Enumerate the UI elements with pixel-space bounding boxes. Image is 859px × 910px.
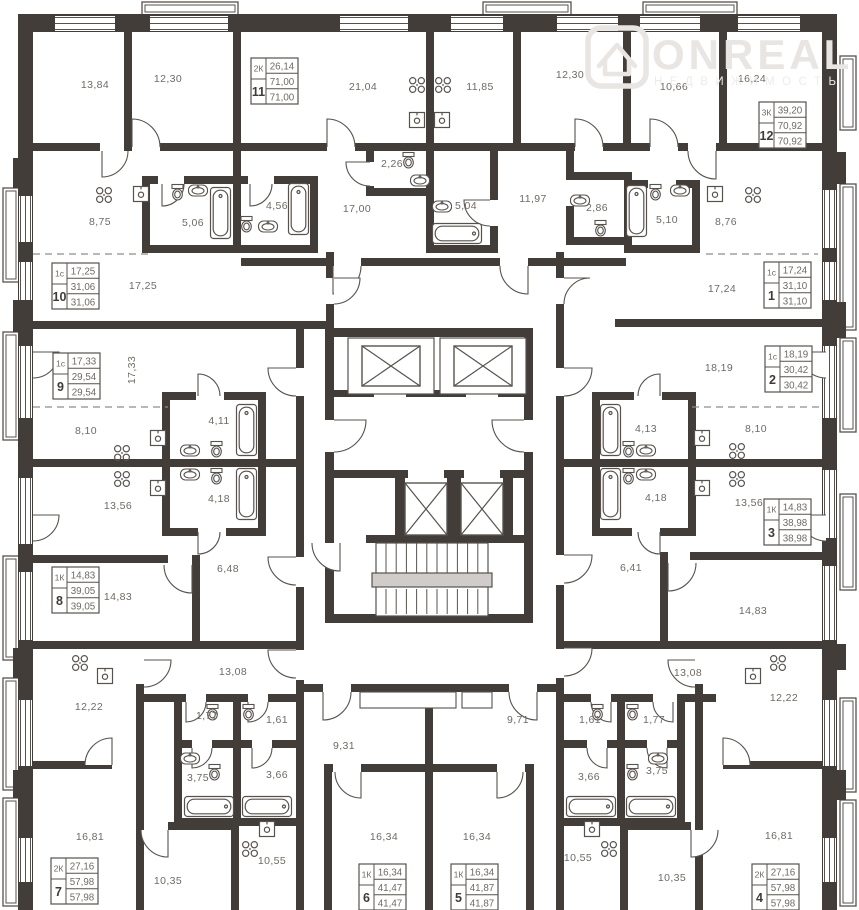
room-area-label: 16,34 xyxy=(370,831,398,843)
basin-icon xyxy=(671,185,690,196)
wall-segment xyxy=(556,678,564,910)
total-area-value-2: 57,98 xyxy=(70,892,95,903)
wall-segment xyxy=(528,258,626,266)
wall-segment xyxy=(426,14,434,253)
wall-segment xyxy=(28,321,326,329)
wall-segment xyxy=(268,694,304,702)
door-arc xyxy=(312,543,340,571)
apartment-type: 2К xyxy=(254,64,264,74)
room-area-label: 1,77 xyxy=(196,710,218,722)
watermark-logo-frame xyxy=(588,28,646,86)
tubv-icon xyxy=(601,405,621,456)
door-arc xyxy=(252,748,272,768)
room-area-value: 26,14 xyxy=(270,62,295,73)
apartment-number: 6 xyxy=(363,891,370,905)
apartment-info-box: 2К1126,1471,0071,00 xyxy=(251,58,298,104)
room-area-label: 17,33 xyxy=(126,356,138,384)
room-area-label: 17,00 xyxy=(343,203,371,215)
door-arc xyxy=(500,266,528,294)
apartment-number: 8 xyxy=(56,594,63,608)
wall-segment xyxy=(695,684,703,910)
wall-segment xyxy=(503,478,513,538)
room-area-value: 39,20 xyxy=(778,106,803,117)
tubh-icon xyxy=(243,797,292,817)
wall-segment xyxy=(366,148,374,162)
wall-segment xyxy=(592,528,632,536)
door-arc xyxy=(497,772,523,798)
toilet-icon xyxy=(241,217,252,233)
wall-segment xyxy=(231,822,239,910)
total-area-value-2: 71,00 xyxy=(270,92,295,103)
room-area-label: 21,04 xyxy=(349,81,377,93)
room-area-label: 12,22 xyxy=(75,701,103,713)
wall-segment xyxy=(142,245,318,253)
door-arc xyxy=(335,772,361,798)
stove-icon xyxy=(115,472,130,487)
total-area-value: 31,06 xyxy=(71,282,96,293)
wall-segment xyxy=(296,680,304,910)
wall-segment xyxy=(326,304,334,332)
apartment-info-box: 1с917,3329,5429,54 xyxy=(53,353,100,399)
room-area-label: 10,55 xyxy=(564,852,592,864)
wall-segment xyxy=(826,644,846,670)
apartment-number: 7 xyxy=(55,885,62,899)
tubv-icon xyxy=(627,186,647,237)
room-area-label: 3,75 xyxy=(187,772,209,784)
total-area-value-2: 29,54 xyxy=(72,387,97,398)
total-area-value-2: 41,87 xyxy=(470,898,495,909)
wall-segment xyxy=(162,392,170,536)
wall-segment xyxy=(678,143,688,151)
sink-icon xyxy=(695,431,710,446)
wall-segment xyxy=(272,740,300,748)
door-arc xyxy=(564,648,592,676)
apartment-info-box: 1К616,3441,4741,47 xyxy=(359,864,406,910)
sink-icon xyxy=(98,669,113,684)
wall-segment xyxy=(162,392,196,400)
total-area-value: 57,98 xyxy=(70,877,95,888)
wall-segment xyxy=(124,32,132,151)
tubh-icon xyxy=(567,797,616,817)
watermark-brand: ONREAL xyxy=(652,31,853,78)
total-area-value-2: 31,06 xyxy=(71,297,96,308)
wall-segment xyxy=(592,392,634,400)
door-arc xyxy=(564,278,590,304)
room-area-label: 12,22 xyxy=(770,692,798,704)
apartment-number: 10 xyxy=(53,290,67,304)
wall-segment xyxy=(241,258,333,266)
room-area-label: 4,56 xyxy=(266,200,288,212)
wall-segment xyxy=(556,641,822,649)
total-area-value-2: 41,47 xyxy=(378,898,403,909)
wall-segment xyxy=(212,740,252,748)
wall-segment xyxy=(556,304,564,368)
tubh-icon xyxy=(185,797,234,817)
door-arc xyxy=(650,119,678,147)
wall-segment xyxy=(826,152,846,184)
balcony-outline xyxy=(3,332,19,440)
wall-segment xyxy=(13,158,33,188)
door-arc xyxy=(132,119,160,147)
wall-segment xyxy=(556,252,564,278)
wall-segment xyxy=(395,478,405,538)
wall-segment xyxy=(366,188,434,196)
stove-icon xyxy=(115,446,130,461)
toilet-icon xyxy=(209,765,220,781)
apartment-type: 2К xyxy=(755,870,765,880)
apartment-number: 9 xyxy=(57,380,64,394)
stove-icon xyxy=(730,444,745,459)
sink-icon xyxy=(260,822,275,837)
wall-segment xyxy=(13,300,33,332)
room-area-label: 2,86 xyxy=(586,202,608,214)
room-area-label: 13,56 xyxy=(735,497,763,509)
basin-icon xyxy=(649,753,668,764)
basin-icon xyxy=(181,445,200,456)
door-arc xyxy=(668,563,696,591)
stove-icon xyxy=(746,188,761,203)
wall-segment xyxy=(168,822,235,830)
room-area-value: 16,34 xyxy=(470,868,495,879)
room-area-value: 17,24 xyxy=(783,266,808,277)
door-arc xyxy=(327,119,355,147)
wall-segment xyxy=(184,176,248,184)
wall-segment xyxy=(603,143,650,151)
apartment-number: 4 xyxy=(756,891,763,905)
room-area-label: 5,10 xyxy=(656,214,678,226)
room-area-label: 5,04 xyxy=(455,200,477,212)
room-area-label: 4,18 xyxy=(645,492,667,504)
wall-segment xyxy=(617,694,625,826)
apartment-info-box: 1К814,8339,0539,05 xyxy=(52,567,99,613)
total-area-value: 29,54 xyxy=(72,372,97,383)
room-area-label: 6,41 xyxy=(620,562,642,574)
wall-segment xyxy=(429,764,497,772)
room-area-label: 10,35 xyxy=(154,875,182,887)
door-arc xyxy=(638,374,660,396)
room-area-label: 8,10 xyxy=(745,423,767,435)
wall-segment xyxy=(537,684,564,692)
toilet-icon xyxy=(650,185,661,201)
room-area-value: 17,25 xyxy=(71,267,96,278)
wall-segment xyxy=(524,452,533,623)
basin-icon xyxy=(181,753,200,764)
door-arc xyxy=(33,515,59,541)
apartment-info-box: 1с1017,2531,0631,06 xyxy=(52,263,99,309)
apartment-type: 1К xyxy=(767,505,777,515)
wall-segment xyxy=(526,768,534,910)
wall-segment xyxy=(566,237,632,245)
sink-icon xyxy=(151,481,166,496)
balcony-outline xyxy=(840,338,856,432)
balcony-outline xyxy=(840,800,856,906)
toilet-icon xyxy=(211,469,222,485)
wall-segment xyxy=(513,32,521,151)
room-area-label: 13,84 xyxy=(81,79,109,91)
sink-icon xyxy=(585,822,600,837)
wall-segment xyxy=(233,184,241,253)
wall-segment xyxy=(500,470,524,478)
room-area-label: 14,83 xyxy=(104,591,132,603)
door-arc xyxy=(85,738,112,765)
tubh-icon xyxy=(433,224,482,244)
toilet-icon xyxy=(595,221,606,237)
room-area-value: 14,83 xyxy=(71,571,96,582)
apartment-info-box: 1К314,8338,9838,98 xyxy=(764,499,811,545)
total-area-value: 38,98 xyxy=(783,518,808,529)
tubv-icon xyxy=(237,405,257,456)
total-area-value-2: 57,98 xyxy=(771,898,796,909)
room-area-label: 12,30 xyxy=(556,69,584,81)
door-arc xyxy=(102,151,128,177)
apartment-info-box: 1с218,1930,4230,42 xyxy=(765,346,812,392)
wall-segment xyxy=(324,768,332,910)
room-area-label: 16,81 xyxy=(76,831,104,843)
apartment-type: 1с xyxy=(767,268,777,278)
total-area-value-2: 30,42 xyxy=(784,380,809,391)
stove-icon xyxy=(243,842,258,857)
apartment-info-box: 1с117,2431,1031,10 xyxy=(764,262,811,308)
walls xyxy=(13,14,846,910)
toilet-icon xyxy=(172,185,183,201)
wall-segment xyxy=(224,392,266,400)
balcony-outline xyxy=(643,2,737,15)
wall-segment xyxy=(566,151,574,180)
total-area-value: 31,10 xyxy=(783,281,808,292)
apartment-type: 1с xyxy=(55,269,65,279)
toilet-icon xyxy=(623,469,634,485)
wall-segment xyxy=(447,478,461,538)
wall-segment xyxy=(556,585,564,648)
floor-plan-drawing: 2К1126,1471,0071,003К1239,2070,9270,921с… xyxy=(0,0,859,910)
basin-icon xyxy=(433,201,452,212)
room-area-label: 17,25 xyxy=(129,280,157,292)
sink-icon xyxy=(708,187,723,202)
basin-icon xyxy=(411,175,430,186)
total-area-value-2: 38,98 xyxy=(783,533,808,544)
wall-segment xyxy=(192,555,200,649)
stove-icon xyxy=(436,78,451,93)
wall-segment xyxy=(13,770,33,798)
wall-segment xyxy=(136,684,144,910)
room-area-label: 3,66 xyxy=(266,769,288,781)
wall-segment xyxy=(434,143,575,151)
door-arc xyxy=(144,660,171,687)
room-area-label: 5,06 xyxy=(182,217,204,229)
room-area-label: 4,13 xyxy=(635,423,657,435)
sink-icon xyxy=(151,431,166,446)
door-arc xyxy=(268,368,296,396)
wall-segment xyxy=(13,648,33,678)
apartment-info-box: 3К1239,2070,9270,92 xyxy=(759,102,806,148)
room-area-label: 11,85 xyxy=(466,81,494,93)
stove-icon xyxy=(97,188,112,203)
wall-segment xyxy=(355,143,426,151)
room-area-label: 3,66 xyxy=(578,771,600,783)
door-arc xyxy=(723,738,750,765)
wall-segment xyxy=(662,392,696,400)
door-arc xyxy=(638,532,660,554)
total-area-value-2: 70,92 xyxy=(778,136,803,147)
tubv-icon xyxy=(601,469,621,520)
apartment-number: 12 xyxy=(760,129,774,143)
wall-segment xyxy=(296,587,304,650)
wall-segment xyxy=(233,694,241,826)
balcony-outline xyxy=(3,556,19,660)
door-arc xyxy=(492,420,524,452)
room-area-label: 13,56 xyxy=(104,500,132,512)
vestibule-outline xyxy=(360,692,456,708)
room-area-label: 10,55 xyxy=(258,855,286,867)
wall-segment xyxy=(620,822,628,910)
door-arc xyxy=(691,830,718,857)
wall-segment xyxy=(564,694,591,702)
watermark-subtitle: НЕДВИЖИМОСТЬ xyxy=(654,76,844,88)
door-arc xyxy=(323,692,351,720)
door-arc xyxy=(268,557,296,585)
wall-segment xyxy=(660,528,696,536)
room-area-value: 16,34 xyxy=(378,868,403,879)
room-area-label: 12,30 xyxy=(154,73,182,85)
stove-icon xyxy=(771,656,786,671)
room-area-value: 27,16 xyxy=(771,868,796,879)
total-area-value: 57,98 xyxy=(771,883,796,894)
wall-segment xyxy=(366,535,524,543)
door-arc xyxy=(346,162,370,186)
tubv-icon xyxy=(289,184,309,235)
wall-segment xyxy=(574,172,632,180)
wall-segment xyxy=(490,148,498,200)
balcony-outline xyxy=(142,2,238,15)
balcony-outline xyxy=(3,798,19,906)
wall-segment xyxy=(620,822,691,830)
door-arc xyxy=(164,565,192,593)
toilet-icon xyxy=(627,765,638,781)
wall-segment xyxy=(690,552,822,560)
wall-segment xyxy=(162,528,198,536)
tubh-icon xyxy=(627,797,676,817)
door-arc xyxy=(334,420,366,452)
wall-segment xyxy=(258,392,266,536)
toilet-icon xyxy=(403,153,414,169)
basin-icon xyxy=(637,469,656,480)
wall-segment xyxy=(624,245,700,253)
apartment-info-box: 1К516,3441,8741,87 xyxy=(451,864,498,910)
wall-segment xyxy=(325,328,533,337)
wall-segment xyxy=(325,452,334,623)
total-area-value: 71,00 xyxy=(270,77,295,88)
sink-icon xyxy=(695,481,710,496)
room-area-label: 8,10 xyxy=(75,425,97,437)
balcony-outline xyxy=(483,2,571,15)
door-arc xyxy=(587,748,607,768)
door-arc xyxy=(198,374,220,396)
door-arc xyxy=(141,830,168,857)
room-area-label: 8,75 xyxy=(89,216,111,228)
toilet-icon xyxy=(211,442,222,458)
room-area-label: 13,08 xyxy=(219,666,247,678)
wall-segment xyxy=(826,770,846,800)
balcony-outline xyxy=(3,188,19,282)
door-arc xyxy=(688,151,716,179)
room-area-label: 1,77 xyxy=(643,714,665,726)
total-area-value: 70,92 xyxy=(778,121,803,132)
total-area-value: 30,42 xyxy=(784,365,809,376)
apartment-type: 3К xyxy=(762,108,772,118)
door-arc xyxy=(575,119,603,147)
wall-segment xyxy=(425,688,433,910)
wall-segment xyxy=(351,684,509,692)
room-area-label: 4,18 xyxy=(208,493,230,505)
room-area-label: 14,83 xyxy=(739,605,767,617)
apartment-type: 1К xyxy=(362,870,372,880)
balcony-outline xyxy=(840,494,856,590)
toilet-icon xyxy=(623,442,634,458)
room-area-value: 27,16 xyxy=(70,862,95,873)
toilet-icon xyxy=(243,705,254,721)
stove-icon xyxy=(410,78,425,93)
wall-segment xyxy=(226,528,266,536)
apartment-info-box: 2К727,1657,9857,98 xyxy=(51,858,98,904)
apartment-type: 1К xyxy=(55,573,65,583)
sink-icon xyxy=(746,669,761,684)
room-area-label: 6,48 xyxy=(217,563,239,575)
wall-segment xyxy=(296,321,304,368)
wall-segment xyxy=(660,552,668,649)
apartment-number: 1 xyxy=(768,289,775,303)
wall-segment xyxy=(310,176,318,253)
door-arc xyxy=(564,555,592,583)
wall-segment xyxy=(592,392,600,536)
apartment-number: 5 xyxy=(455,891,462,905)
basin-icon xyxy=(637,445,656,456)
room-area-value: 18,19 xyxy=(784,350,809,361)
wall-segment xyxy=(160,143,327,151)
room-area-label: 1,61 xyxy=(579,714,601,726)
room-area-label: 11,97 xyxy=(519,193,547,205)
room-area-label: 3,75 xyxy=(646,765,668,777)
wall-segment xyxy=(426,245,498,253)
room-area-label: 18,19 xyxy=(705,362,733,374)
room-area-label: 1,61 xyxy=(266,714,288,726)
wall-segment xyxy=(564,740,587,748)
basin-icon xyxy=(259,221,278,232)
stove-icon xyxy=(73,656,88,671)
wall-segment xyxy=(623,32,631,151)
sink-icon xyxy=(435,113,450,128)
vestibule-outline xyxy=(462,692,492,708)
total-area-value-2: 39,05 xyxy=(71,601,96,612)
room-area-label: 2,26 xyxy=(381,158,403,170)
room-area-label: 16,34 xyxy=(463,831,491,843)
room-area-label: 4,11 xyxy=(208,415,229,427)
basin-icon xyxy=(181,469,200,480)
tubv-icon xyxy=(211,188,231,239)
apartment-number: 2 xyxy=(769,373,776,387)
room-area-value: 17,33 xyxy=(72,357,97,368)
wall-segment xyxy=(677,694,685,826)
stove-icon xyxy=(730,472,745,487)
wall-segment xyxy=(334,470,408,478)
wall-segment xyxy=(233,32,241,180)
apartment-type: 2К xyxy=(54,864,64,874)
apartment-number: 3 xyxy=(768,526,775,540)
wall-segment xyxy=(615,319,822,327)
stair-landing xyxy=(372,573,492,587)
wall-segment xyxy=(28,555,168,563)
wall-segment xyxy=(444,470,464,478)
room-area-value: 14,83 xyxy=(783,503,808,514)
